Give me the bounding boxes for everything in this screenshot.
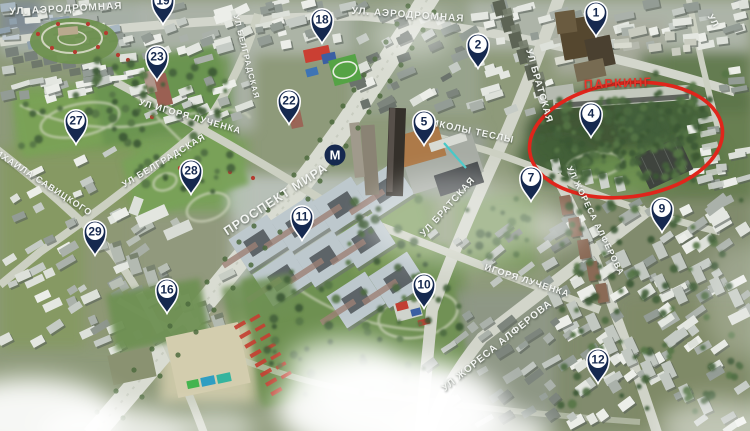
svg-text:19: 19 (156, 0, 170, 7)
svg-text:29: 29 (88, 224, 102, 238)
svg-text:5: 5 (421, 114, 428, 128)
svg-text:28: 28 (184, 163, 198, 177)
svg-text:11: 11 (296, 209, 309, 223)
svg-text:М: М (330, 148, 341, 163)
svg-text:27: 27 (69, 113, 83, 127)
svg-text:7: 7 (528, 170, 535, 184)
svg-text:23: 23 (150, 49, 164, 63)
svg-text:18: 18 (315, 12, 329, 26)
svg-text:12: 12 (591, 352, 605, 366)
svg-text:9: 9 (659, 201, 666, 215)
svg-text:ПАРКИНГ: ПАРКИНГ (584, 75, 653, 91)
svg-text:10: 10 (417, 277, 431, 291)
svg-text:1: 1 (593, 5, 600, 19)
svg-text:22: 22 (282, 93, 296, 107)
svg-text:2: 2 (475, 37, 482, 51)
svg-text:16: 16 (160, 282, 174, 296)
svg-text:4: 4 (588, 106, 595, 120)
